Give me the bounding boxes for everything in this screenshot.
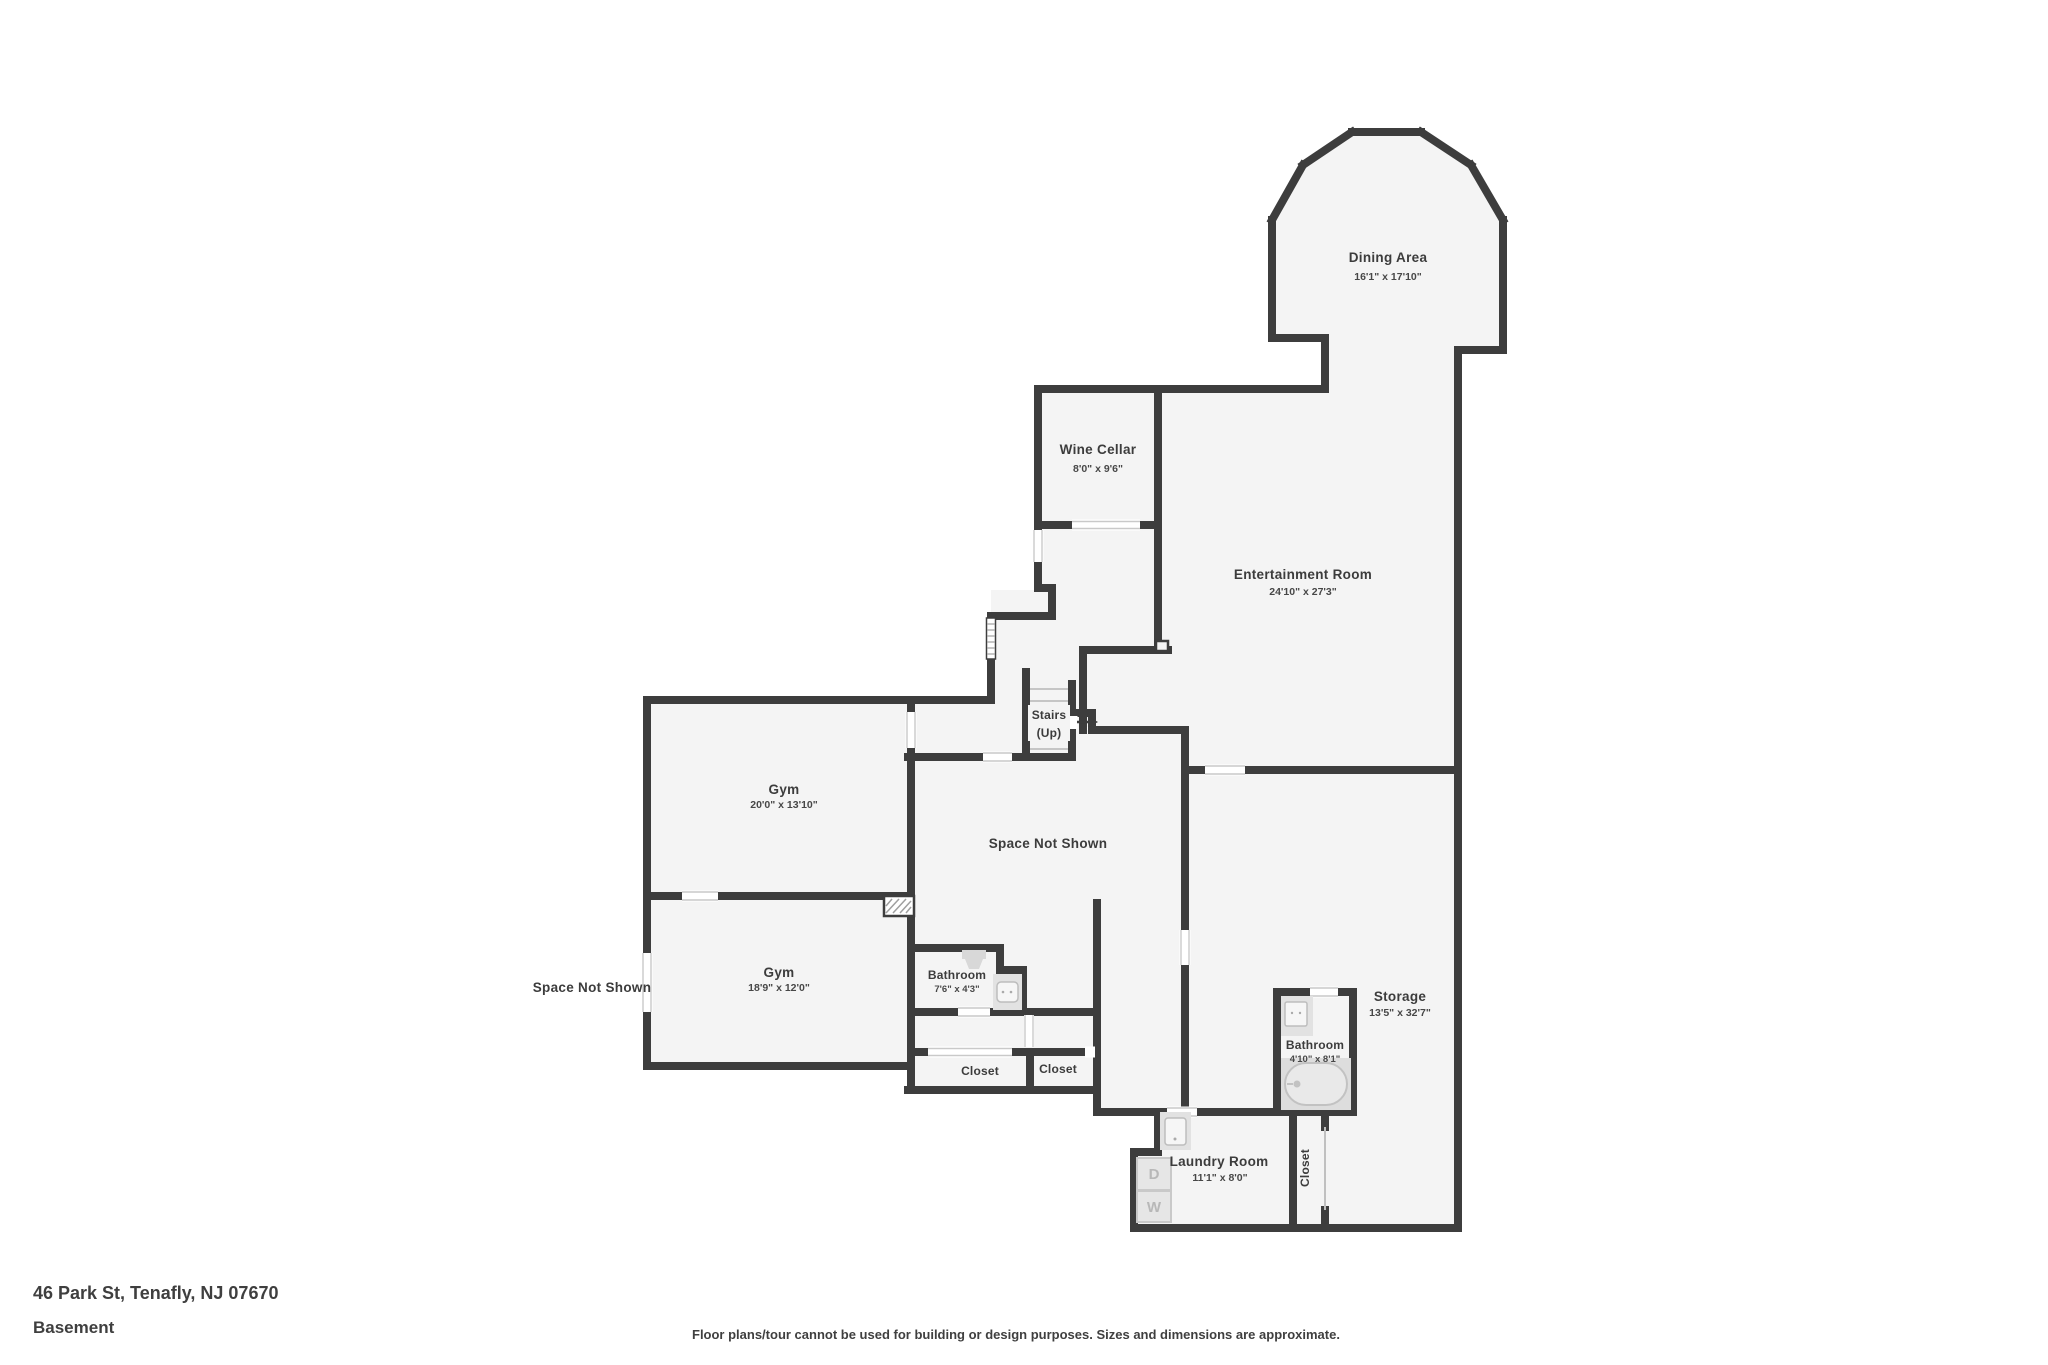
label-wine-cellar: Wine Cellar [1060,442,1137,457]
floor-level-title: Basement [33,1318,114,1338]
floorplan-canvas: D W Dining Area 16'1" x 17'10" Wine Cell… [0,0,2048,1365]
label-bathroom-small: Bathroom [928,968,986,982]
floor-gyms [647,700,911,1066]
dryer-letter: D [1149,1166,1160,1183]
label-bathroom-small-dims: 7'6" x 4'3" [934,984,979,995]
property-address: 46 Park St, Tenafly, NJ 07670 [33,1283,278,1304]
wall-notch [1156,641,1168,651]
label-laundry-dims: 11'1" x 8'0" [1192,1172,1247,1184]
label-gym-lower: Gym [764,965,795,980]
label-gym-upper-dims: 20'0" x 13'10" [750,799,818,811]
label-dining-dims: 16'1" x 17'10" [1354,271,1422,283]
label-closet-right: Closet [1039,1062,1077,1076]
laundry-sink-icon [1160,1112,1191,1150]
vanity-sink-icon [1281,996,1313,1036]
label-entertainment-room: Entertainment Room [1234,567,1372,582]
label-storage-dims: 13'5" x 32'7" [1369,1007,1431,1019]
chimney-hatch-icon [884,896,914,916]
label-dining-area: Dining Area [1349,250,1428,265]
label-storage: Storage [1374,989,1427,1004]
washer-icon: W [1137,1191,1171,1222]
disclaimer-text: Floor plans/tour cannot be used for buil… [692,1327,1340,1342]
label-gym-lower-dims: 18'9" x 12'0" [748,982,810,994]
label-laundry-room: Laundry Room [1170,1154,1269,1169]
label-space-not-shown-center: Space Not Shown [989,836,1108,851]
bathtub-icon [1281,1058,1351,1110]
dryer-icon: D [1137,1158,1171,1190]
washer-letter: W [1147,1199,1162,1216]
window-hatch-icon [987,618,996,659]
label-space-not-shown-left: Space Not Shown [533,980,652,995]
label-stairs-up: (Up) [1037,726,1062,740]
label-stairs: Stairs [1032,708,1067,722]
door-opening [1085,1047,1095,1058]
label-wine-cellar-dims: 8'0" x 9'6" [1073,463,1123,475]
label-bathroom-large: Bathroom [1286,1038,1344,1052]
label-entertainment-dims: 24'10" x 27'3" [1269,586,1337,598]
label-closet-vertical: Closet [1298,1149,1312,1187]
toilet-icon [993,974,1022,1010]
label-gym-upper: Gym [769,782,800,797]
floor-wine-cellar [1038,389,1158,525]
label-bathroom-large-dims: 4'10" x 8'1" [1290,1054,1341,1065]
label-closet-left: Closet [961,1064,999,1078]
